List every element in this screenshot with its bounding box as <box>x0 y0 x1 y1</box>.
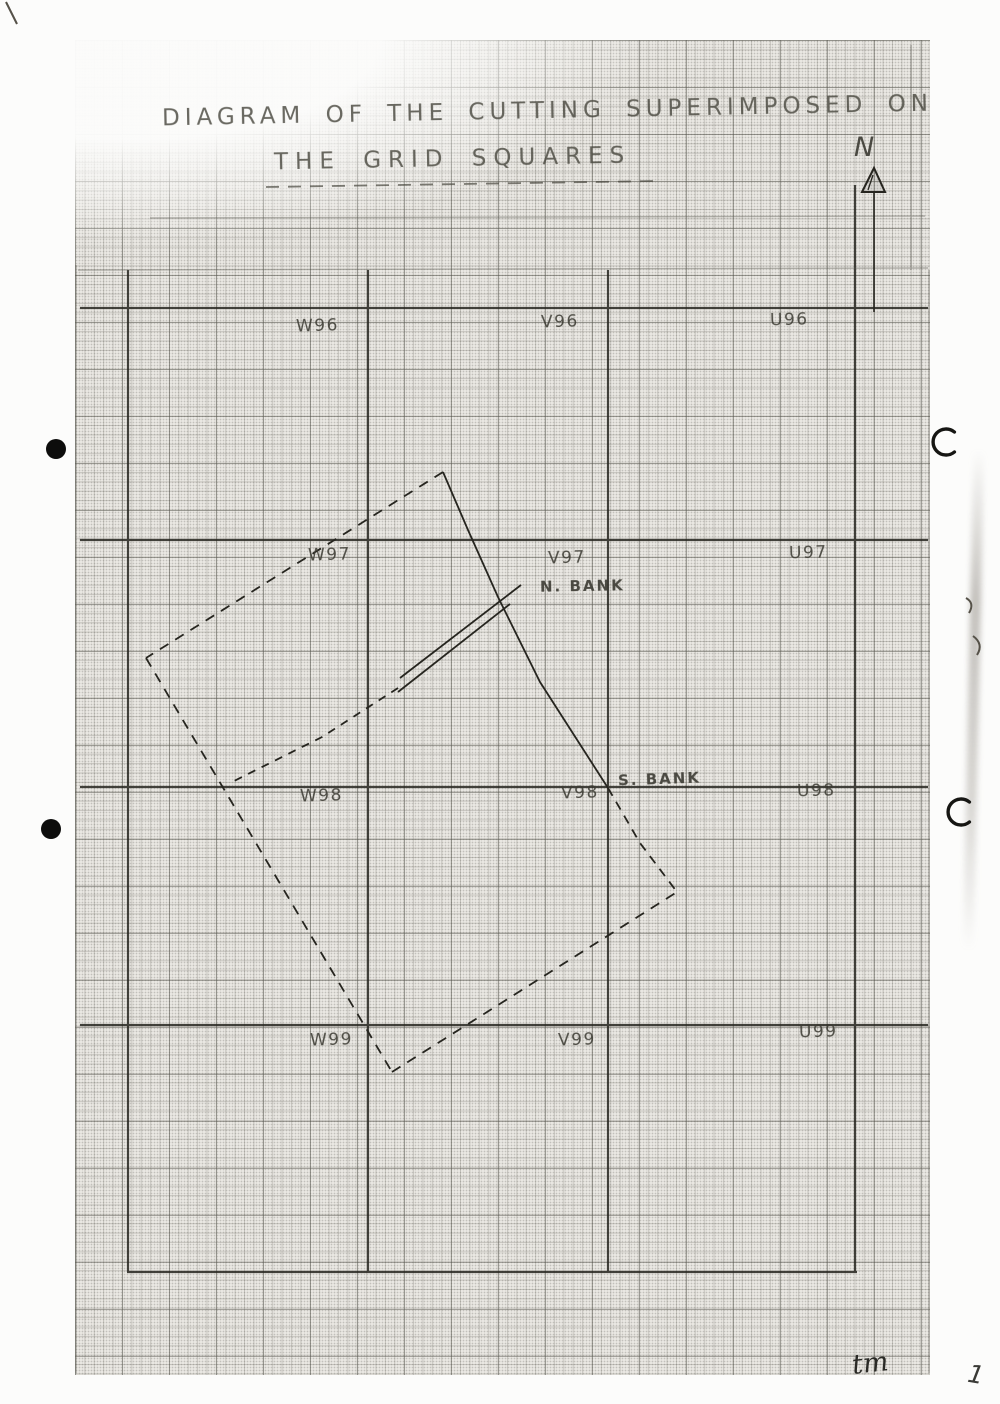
s-bank-label: S. BANK <box>618 769 702 790</box>
grid-label-u96: U96 <box>770 309 809 330</box>
ring-mark-icon <box>948 799 969 825</box>
binder-ring-marks <box>933 429 969 825</box>
scanned-diagram-page: DIAGRAM OF THE CUTTING SUPERIMPOSED ON T… <box>0 0 1000 1404</box>
faint-paper-lines <box>76 45 929 1373</box>
cutting-east-edge-dashed <box>608 788 677 892</box>
handwritten-initials: tm <box>850 1346 889 1381</box>
punch-hole-icon <box>41 819 61 839</box>
grid-label-v99: V99 <box>558 1030 596 1051</box>
cutting-east-edge-solid <box>443 472 608 788</box>
punch-holes <box>41 439 66 839</box>
survey-grid-lines <box>80 185 928 1272</box>
south-bank-line <box>398 604 510 692</box>
diagram-overlay <box>0 0 1000 1404</box>
grid-label-v96: V96 <box>541 312 579 333</box>
grid-label-w99: W99 <box>310 1029 353 1050</box>
grid-label-u97: U97 <box>789 542 828 563</box>
grid-label-w98: W98 <box>300 785 343 806</box>
grid-label-w97: W97 <box>308 544 351 565</box>
bank-dashed-extension <box>230 688 398 783</box>
ring-mark-icon <box>933 429 954 455</box>
north-arrow-icon <box>862 168 885 312</box>
cutting-outline <box>146 472 677 1072</box>
cutting-nw-edge <box>146 472 443 658</box>
grid-label-w96: W96 <box>296 315 339 336</box>
grid-label-v98: V98 <box>561 783 599 804</box>
north-label: N <box>854 132 874 163</box>
title-underline <box>266 181 658 187</box>
grid-label-v97: V97 <box>548 548 586 569</box>
north-bank-line <box>400 585 521 678</box>
grid-label-u98: U98 <box>797 780 836 801</box>
n-bank-label: N. BANK <box>540 576 625 595</box>
grid-label-u99: U99 <box>799 1021 838 1042</box>
cutting-sw-edge <box>146 658 392 1072</box>
cutting-se-edge <box>392 892 677 1072</box>
punch-hole-icon <box>46 439 66 459</box>
